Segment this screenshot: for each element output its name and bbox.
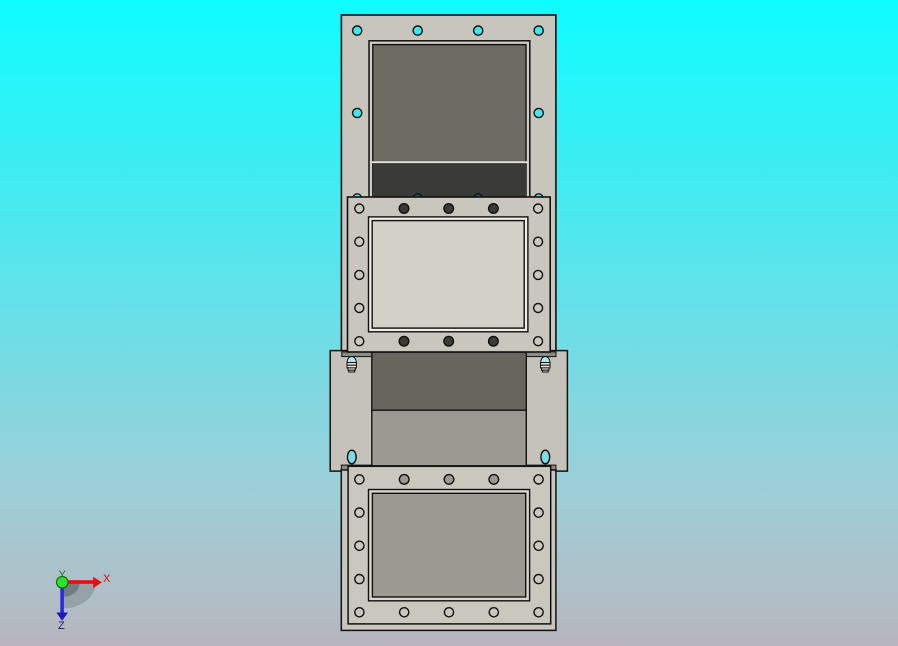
svg-text:Z: Z (58, 620, 65, 632)
svg-text:X: X (103, 573, 111, 585)
